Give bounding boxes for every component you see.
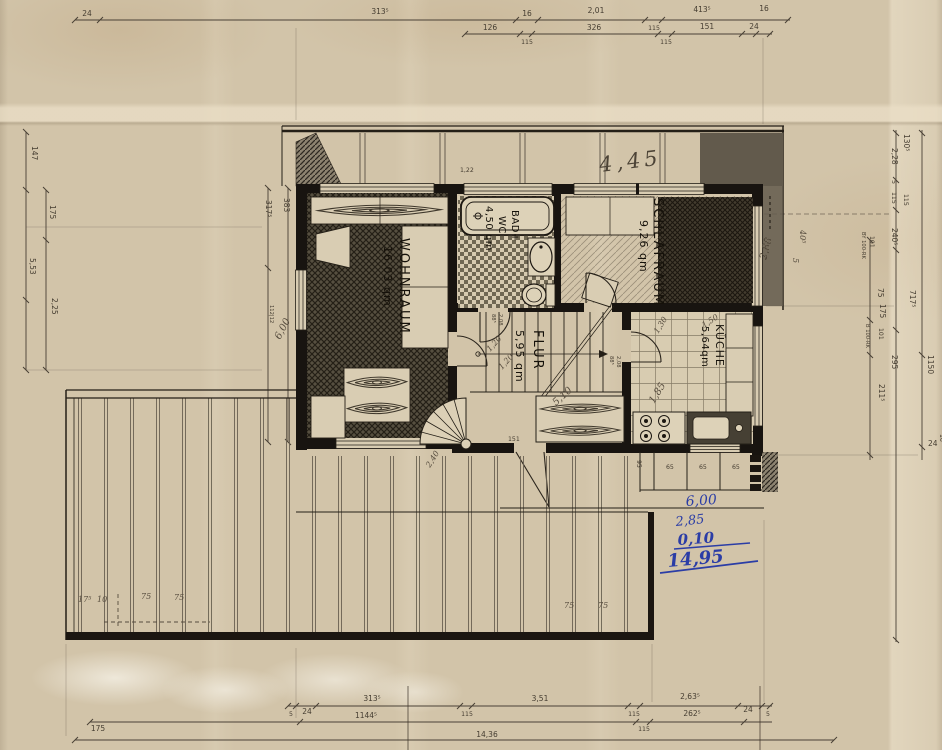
room-area-label: 5,64qm — [699, 326, 710, 367]
step-dim-label: 95 — [635, 460, 642, 468]
pencil-right-tick: 5 — [791, 258, 800, 263]
dim-label: 24 — [743, 705, 753, 714]
dim-ticks — [23, 129, 49, 373]
flur-kueche-wall — [622, 312, 631, 330]
dim-label: 75 — [876, 288, 885, 298]
pencil-deck-dim: 75 — [174, 593, 184, 602]
dim-label: 101 — [877, 328, 884, 340]
pencil-deck-dim: 17⁵ — [78, 595, 92, 604]
dim-label: 24 — [82, 9, 92, 18]
dim-label: 115 — [638, 726, 650, 733]
dim-label: 115 — [890, 192, 897, 204]
window-wohnraum-bottom — [336, 438, 426, 449]
dim-label: 2,01 — [588, 6, 605, 15]
pencil-roof-width: 4,45 — [597, 145, 663, 177]
wohnraum-flur-wall — [448, 193, 457, 332]
window-kueche-bottom — [690, 444, 740, 453]
schlafraum-bottom-wall — [556, 303, 584, 312]
room-area-label: 5,95 qm — [513, 330, 526, 383]
entry-steps: 65 65 65 95 — [635, 452, 778, 492]
side-table — [311, 396, 345, 438]
deck-planks-left — [76, 398, 296, 632]
deck-bottom-border — [66, 632, 654, 640]
right-dimension-chains: 130⁵ 2,28 5 115 115 240⁵ 101 BY 100-RK 7… — [764, 130, 942, 643]
kitchen-sink — [687, 412, 751, 444]
dim-label: 147 — [30, 146, 39, 161]
dim-label: 24 — [928, 439, 938, 448]
window-dim-label: 1,22 — [460, 167, 474, 174]
deck-top-border — [66, 390, 296, 398]
room-area-label: 9,26 qm — [637, 220, 650, 273]
bed-dark-hatch — [658, 197, 753, 303]
blue-sum-line2: 2,85 — [674, 512, 705, 530]
room-label: WOHNRAUM — [396, 238, 411, 335]
dim-label: 115 — [648, 25, 660, 32]
dim-label: 313⁵ — [371, 7, 388, 16]
dim-label: 130⁵ — [902, 134, 911, 151]
pencil-right-small: 40⁵ — [798, 229, 807, 244]
stove — [633, 412, 685, 444]
dim-label: 101 — [868, 236, 875, 248]
step-lines — [640, 452, 764, 492]
sideboard — [311, 197, 448, 224]
roof-hatch-right — [700, 133, 783, 186]
room-label: KÜCHE — [713, 324, 726, 367]
window-top-2 — [464, 184, 552, 195]
dim-label: 262⁵ — [683, 709, 700, 718]
room-area-label: 4,50 qm — [483, 206, 494, 251]
dim-label: 24 — [749, 22, 759, 31]
dim-label: 115 — [902, 194, 909, 206]
dim-label: 1144⁵ — [355, 711, 377, 720]
blue-ink-sum: 6,00 2,85 0,10 14,95 — [660, 492, 758, 573]
step-hatch-band — [762, 452, 778, 492]
dim-label: 115 — [660, 39, 672, 46]
dim-label: 313⁵ — [363, 694, 380, 703]
door-dim-label: 2,08 — [615, 356, 621, 368]
dim-label: 2,63⁵ — [680, 692, 700, 701]
dim-label: 1150 — [926, 355, 935, 374]
room-label: BAD+ — [509, 210, 520, 242]
dim-label: 413⁵ — [693, 5, 710, 14]
scanned-floor-plan-page: { "rooms": { "wohnraum": {"name":"WOHNRA… — [0, 0, 942, 750]
dim-label: 16 — [759, 4, 769, 13]
deck-planks-right — [296, 456, 648, 632]
floor-plan-drawing: 24 313⁵ 16 2,01 115 413⁵ 16 126 115 326 … — [0, 0, 942, 750]
door-dim-label: 88⁵ — [608, 356, 614, 365]
dim-label: 115 — [461, 711, 473, 718]
pencil-deck-dim: 10 — [97, 595, 107, 604]
step-block — [750, 455, 761, 462]
step-dim-label: 65 — [732, 464, 740, 471]
step-dim-label: 65 — [666, 464, 674, 471]
window-top-1 — [320, 184, 434, 195]
dim-label: 175 — [878, 304, 887, 319]
pencil-deck-dim: 75 — [598, 601, 608, 610]
dim-label: 5 — [766, 711, 770, 718]
blue-sum-line1: 6,00 — [685, 492, 717, 510]
dim-label: 16 — [522, 9, 532, 18]
extension-lines — [26, 227, 262, 370]
door-dim-label: 2,08 — [497, 314, 503, 326]
dim-label: 175 — [91, 724, 106, 733]
door-dim-label: 88⁵ — [490, 314, 496, 323]
room-label: SCHLAFRAUM — [650, 198, 665, 307]
pencil-deck-dim: 75 — [564, 601, 574, 610]
room-label: FLUR — [530, 330, 545, 371]
rug — [344, 368, 410, 422]
wohnraum-door — [457, 336, 487, 366]
dim-label: 5,53 — [28, 258, 37, 275]
deck-right-border — [648, 512, 654, 638]
dim-label: 317⁵ — [264, 200, 273, 217]
window-left — [296, 270, 307, 330]
dim-line — [26, 132, 46, 370]
step-block — [750, 465, 761, 472]
dim-label: 3,51 — [532, 694, 549, 703]
dim-label: 5 — [289, 711, 293, 718]
dim-label: 151 — [700, 22, 715, 31]
pencil-deck-dim: 75 — [141, 592, 151, 601]
step-block — [750, 484, 761, 491]
schlafraum-bottom-wall — [612, 303, 763, 312]
dim-label: 151 — [508, 436, 520, 443]
extension-lines — [766, 306, 918, 455]
dim-label: 175 — [48, 205, 57, 220]
toilet — [522, 284, 555, 306]
pencil-flur-a: 1,20 — [485, 334, 504, 353]
dim-label: 112|12 — [268, 305, 274, 323]
dim-label: 295 — [890, 355, 899, 370]
counter-right — [726, 314, 753, 416]
roof-hatch-left — [296, 133, 342, 186]
dim-label: 14,36 — [476, 730, 498, 739]
window-top-3 — [574, 184, 704, 195]
dim-label: BY 100-RK — [860, 232, 866, 259]
dim-label: 115 — [521, 39, 533, 46]
sink — [528, 238, 555, 276]
left-dimension-chain: 147 175 5,53 2,25 — [23, 129, 262, 373]
room-schlafraum: SCHLAFRAUM 9,26 qm — [561, 196, 753, 307]
top-dimension-chains: 24 313⁵ 16 2,01 115 413⁵ 16 126 115 326 … — [72, 4, 791, 124]
dim-label: 126 — [483, 23, 498, 32]
pencil-flur-b: 1,20 — [497, 352, 516, 371]
dim-label: 717⁵ — [908, 290, 917, 307]
step-block — [750, 475, 761, 482]
dim-label: 5 — [890, 180, 897, 184]
room-wohnraum: WOHNRAUM 16,03 qm — [307, 193, 448, 438]
pencil-left-height: 6,00 — [273, 316, 293, 341]
dim-label: 383 — [282, 198, 291, 213]
dim-label: 2,25 — [50, 298, 59, 315]
paper-sheet: 24 313⁵ 16 2,01 115 413⁵ 16 126 115 326 … — [0, 0, 942, 750]
room-area-label: 16,03 qm — [381, 246, 394, 307]
dim-label: 2,28 — [890, 148, 899, 165]
dim-label: 115 — [628, 711, 640, 718]
step-dim-label: 65 — [699, 464, 707, 471]
dim-label: B 100-RK — [864, 324, 870, 349]
dim-label: 326 — [587, 23, 602, 32]
room-kueche: KÜCHE 5,64qm — [631, 312, 753, 444]
room-label: WC — [496, 216, 507, 234]
dim-label: 24 — [302, 707, 312, 716]
dim-label: 16 — [938, 434, 942, 442]
wood-floor — [536, 396, 624, 442]
dim-label: 211⁵ — [877, 384, 886, 401]
dim-label: 240⁵ — [890, 228, 899, 245]
stair-arrow — [599, 350, 608, 358]
